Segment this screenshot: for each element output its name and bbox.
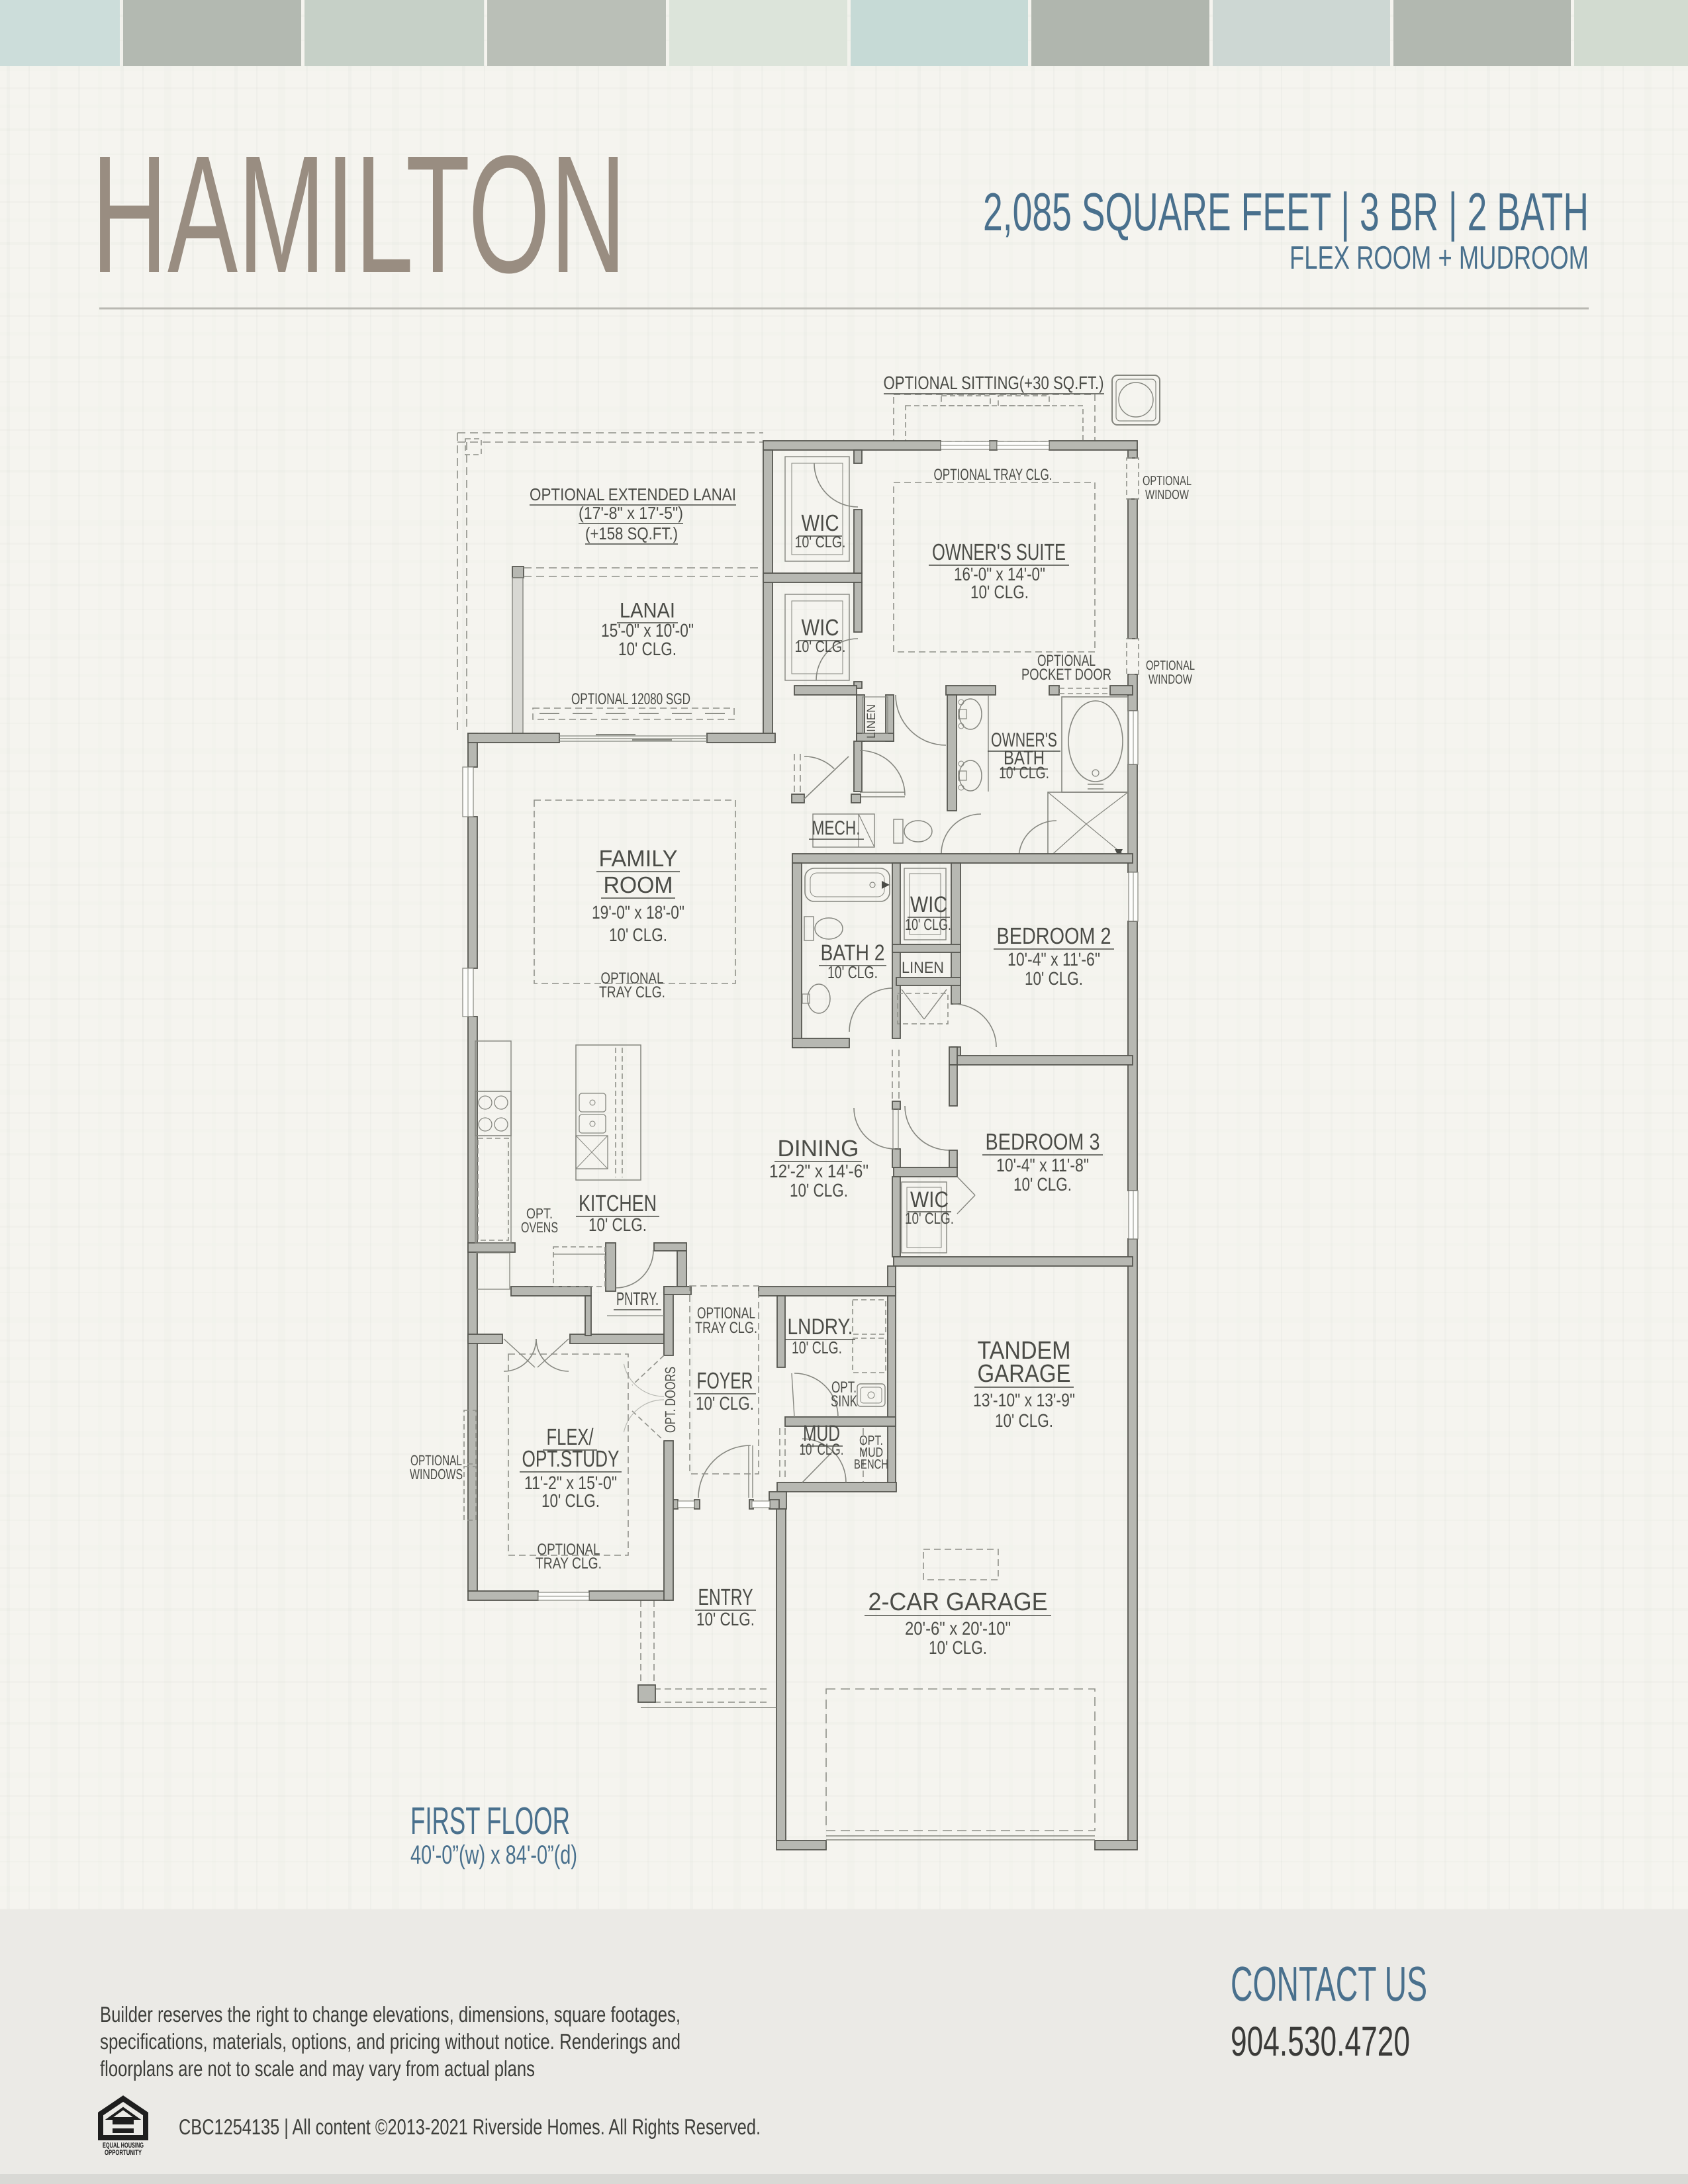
svg-text:OPTIONAL 12080 SGD: OPTIONAL 12080 SGD: [571, 690, 690, 708]
svg-text:WIC: WIC: [802, 510, 839, 536]
svg-text:10' CLG.: 10' CLG.: [999, 764, 1049, 782]
svg-text:GARAGE: GARAGE: [978, 1360, 1071, 1388]
svg-text:15'-0" x 10'-0": 15'-0" x 10'-0": [601, 620, 694, 641]
svg-text:WIC: WIC: [802, 615, 839, 641]
svg-text:19'-0" x 18'-0": 19'-0" x 18'-0": [592, 902, 684, 923]
svg-text:(+158 SQ.FT.): (+158 SQ.FT.): [585, 523, 678, 543]
svg-text:BEDROOM 2: BEDROOM 2: [997, 923, 1111, 949]
svg-text:10' CLG.: 10' CLG.: [618, 639, 677, 659]
svg-text:12'-2" x 14'-6": 12'-2" x 14'-6": [769, 1161, 868, 1181]
svg-text:OPTIONAL TRAY CLG.: OPTIONAL TRAY CLG.: [934, 466, 1053, 484]
svg-text:10' CLG.: 10' CLG.: [541, 1490, 600, 1511]
svg-text:CONTACT US: CONTACT US: [1231, 1956, 1427, 2011]
svg-text:WIC: WIC: [910, 892, 947, 917]
svg-text:10' CLG.: 10' CLG.: [929, 1637, 987, 1658]
svg-text:specifications, materials, opt: specifications, materials, options, and …: [100, 2029, 680, 2054]
svg-text:OPTIONAL SITTING(+30 SQ.FT.): OPTIONAL SITTING(+30 SQ.FT.): [884, 373, 1104, 393]
svg-text:BEDROOM 3: BEDROOM 3: [986, 1129, 1100, 1155]
svg-text:POCKET DOOR: POCKET DOOR: [1021, 666, 1111, 684]
svg-text:OPT. DOORS: OPT. DOORS: [662, 1367, 679, 1433]
svg-text:WINDOW: WINDOW: [1149, 672, 1192, 687]
svg-text:10' CLG.: 10' CLG.: [995, 1410, 1053, 1431]
svg-text:10' CLG.: 10' CLG.: [905, 1210, 954, 1228]
svg-text:FOYER: FOYER: [697, 1368, 753, 1394]
svg-text:OPTIONAL EXTENDED LANAI: OPTIONAL EXTENDED LANAI: [530, 484, 736, 504]
svg-text:SINK: SINK: [831, 1392, 857, 1410]
svg-text:10' CLG.: 10' CLG.: [792, 1338, 842, 1357]
svg-text:904.530.4720: 904.530.4720: [1231, 2019, 1410, 2065]
svg-text:ROOM: ROOM: [604, 872, 673, 898]
svg-text:20'-6" x 20'-10": 20'-6" x 20'-10": [905, 1618, 1011, 1639]
svg-text:HAMILTON: HAMILTON: [91, 120, 626, 308]
svg-text:PNTRY.: PNTRY.: [616, 1289, 659, 1309]
svg-text:DINING: DINING: [778, 1136, 859, 1161]
svg-text:10' CLG.: 10' CLG.: [1013, 1174, 1072, 1195]
svg-text:10' CLG.: 10' CLG.: [800, 1441, 844, 1459]
svg-text:TRAY CLG.: TRAY CLG.: [695, 1319, 757, 1337]
svg-text:OVENS: OVENS: [521, 1219, 558, 1236]
svg-text:KITCHEN: KITCHEN: [579, 1191, 657, 1216]
svg-text:floorplans are not to scale an: floorplans are not to scale and may vary…: [100, 2056, 535, 2081]
svg-text:LINEN: LINEN: [865, 704, 878, 739]
svg-text:40'-0”(w) x 84'-0”(d): 40'-0”(w) x 84'-0”(d): [410, 1841, 577, 1870]
svg-text:10' CLG.: 10' CLG.: [696, 1609, 755, 1629]
svg-text:MECH.: MECH.: [812, 817, 861, 839]
svg-text:OPPORTUNITY: OPPORTUNITY: [105, 2149, 142, 2157]
svg-text:(17'-8" x 17'-5"): (17'-8" x 17'-5"): [579, 503, 683, 523]
svg-text:2-CAR GARAGE: 2-CAR GARAGE: [868, 1588, 1048, 1616]
svg-text:13'-10" x 13'-9": 13'-10" x 13'-9": [973, 1390, 1075, 1410]
svg-text:FLEX ROOM + MUDROOM: FLEX ROOM + MUDROOM: [1289, 240, 1589, 276]
svg-text:FIRST FLOOR: FIRST FLOOR: [410, 1799, 570, 1843]
svg-text:10'-4" x 11'-8": 10'-4" x 11'-8": [996, 1155, 1089, 1175]
svg-text:2,085 SQUARE FEET | 3 BR |: 2,085 SQUARE FEET | 3 BR | 2 BATH: [983, 183, 1589, 242]
svg-text:10'-4" x 11'-6": 10'-4" x 11'-6": [1008, 949, 1100, 970]
svg-text:10' CLG.: 10' CLG.: [970, 582, 1029, 602]
svg-text:OPTIONAL: OPTIONAL: [1146, 659, 1195, 673]
svg-text:LINEN: LINEN: [902, 959, 944, 977]
svg-text:CBC1254135 | All content ©2013: CBC1254135 | All content ©2013-2021 Rive…: [179, 2115, 761, 2139]
svg-text:10' CLG.: 10' CLG.: [588, 1214, 647, 1235]
svg-text:10' CLG.: 10' CLG.: [1025, 968, 1083, 989]
svg-text:OWNER'S SUITE: OWNER'S SUITE: [932, 539, 1066, 565]
svg-text:OPTIONAL: OPTIONAL: [1143, 474, 1192, 488]
svg-text:TRAY CLG.: TRAY CLG.: [536, 1555, 602, 1572]
svg-text:10' CLG.: 10' CLG.: [696, 1393, 754, 1414]
svg-text:OPT.STUDY: OPT.STUDY: [522, 1446, 620, 1472]
svg-text:LANAI: LANAI: [620, 598, 675, 622]
svg-text:BENCH: BENCH: [854, 1457, 888, 1472]
svg-text:10' CLG.: 10' CLG.: [795, 638, 846, 656]
svg-text:TRAY CLG.: TRAY CLG.: [599, 983, 665, 1001]
svg-text:WINDOW: WINDOW: [1145, 488, 1189, 502]
svg-text:10' CLG.: 10' CLG.: [790, 1180, 848, 1201]
svg-text:FAMILY: FAMILY: [599, 846, 678, 872]
svg-text:ENTRY: ENTRY: [698, 1584, 753, 1610]
svg-text:Builder reserves the right to: Builder reserves the right to change ele…: [100, 2002, 680, 2026]
svg-text:10' CLG.: 10' CLG.: [795, 533, 846, 551]
svg-text:LNDRY.: LNDRY.: [788, 1314, 853, 1340]
svg-text:10' CLG.: 10' CLG.: [905, 916, 951, 934]
svg-text:10' CLG.: 10' CLG.: [609, 925, 667, 945]
svg-text:WIC: WIC: [910, 1187, 949, 1212]
svg-text:10' CLG.: 10' CLG.: [827, 962, 878, 982]
svg-text:WINDOWS: WINDOWS: [410, 1466, 463, 1482]
